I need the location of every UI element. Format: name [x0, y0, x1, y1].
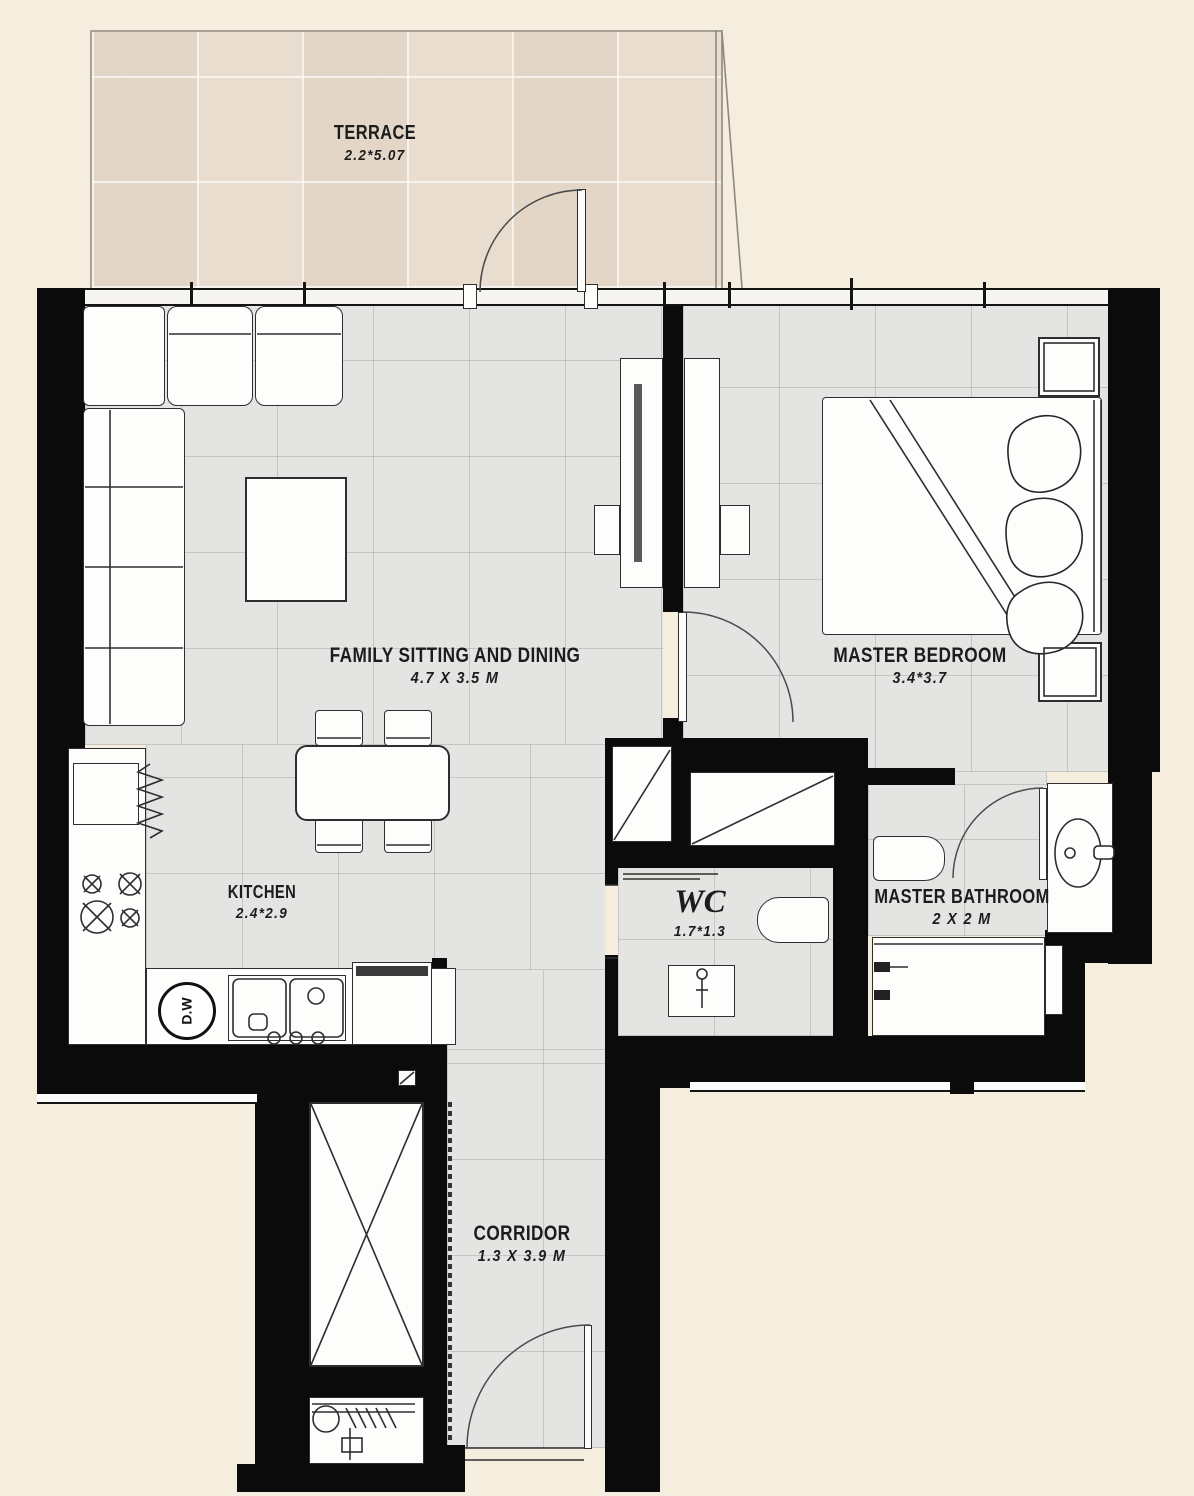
wc-closet	[690, 772, 835, 846]
wall-segment	[663, 306, 683, 612]
room-dims: 4.7 X 3.5 M	[317, 670, 592, 688]
dining-table	[295, 745, 450, 821]
sofa-seat	[167, 306, 253, 406]
room-name: MASTER BATHROOM	[874, 886, 1049, 909]
room-name: KITCHEN	[228, 882, 296, 903]
wall-segment	[605, 868, 618, 885]
window-mullion	[850, 278, 853, 310]
dishwasher: D.W	[158, 982, 216, 1040]
terrace-label: TERRACE 2.2*5.07	[325, 122, 425, 164]
wc-sink	[668, 965, 735, 1017]
wc-toilet	[757, 897, 829, 943]
shaft-valve-icon	[398, 1070, 416, 1086]
wall-notch	[950, 1082, 974, 1094]
dining-chair	[315, 710, 363, 746]
wall-segment	[424, 1445, 465, 1492]
wall-segment	[255, 1102, 309, 1492]
window-mullion	[303, 282, 306, 308]
tv-icon	[634, 384, 642, 562]
sofa-seat	[255, 306, 343, 406]
room-name: WC	[671, 884, 729, 921]
wc-closet	[612, 746, 672, 842]
console-side-box	[594, 505, 620, 555]
master-bathroom-label: MASTER BATHROOM 2 X 2 M	[855, 886, 1069, 929]
oven	[352, 962, 432, 1045]
wall-segment	[605, 955, 618, 1040]
wc-label: WC 1.7*1.3	[671, 884, 729, 940]
bedroom-door-leaf	[678, 612, 687, 722]
hall-floor	[447, 970, 605, 1050]
mechanical-room	[309, 1397, 424, 1464]
terrace-door-jamb	[463, 284, 477, 309]
wall-segment	[683, 745, 853, 772]
wall-segment	[845, 768, 955, 785]
dining-chair	[315, 818, 363, 853]
floor-plan: D.W	[0, 0, 1194, 1496]
service-shaft	[309, 1102, 424, 1367]
nightstand	[1038, 642, 1102, 702]
terrace-door-jamb	[584, 284, 598, 309]
dishwasher-label: D.W	[179, 997, 195, 1024]
wall-trim	[690, 1082, 1085, 1092]
terrace-door-leaf	[577, 189, 586, 292]
family-sitting-label: FAMILY SITTING AND DINING 4.7 X 3.5 M	[302, 644, 608, 688]
entrance-door-leaf	[584, 1325, 592, 1449]
bedroom-bench	[720, 505, 750, 555]
window-mullion	[728, 282, 731, 308]
room-dims: 1.7*1.3	[674, 923, 726, 940]
wall-segment	[605, 1085, 660, 1492]
room-dims: 2 X 2 M	[866, 911, 1058, 929]
room-dims: 1.3 X 3.9 M	[469, 1248, 576, 1266]
wall-segment	[37, 1040, 447, 1102]
shower-tub	[872, 937, 1045, 1036]
coffee-table	[245, 477, 347, 602]
room-name: TERRACE	[334, 122, 416, 145]
bed	[822, 397, 1102, 635]
dining-chair	[384, 818, 432, 853]
sofa-corner-section	[83, 306, 165, 406]
sofa-left-section	[83, 408, 185, 726]
wall-segment	[605, 1036, 860, 1088]
room-dims: 2.2*5.07	[330, 147, 420, 164]
master-bedroom-label: MASTER BEDROOM 3.4*3.7	[814, 644, 1025, 688]
wall-segment	[424, 1102, 447, 1448]
wall-segment	[309, 1367, 424, 1397]
kitchen-sink-unit	[228, 975, 346, 1041]
room-dims: 2.4*2.9	[224, 905, 299, 922]
bathroom-door-leaf	[1039, 788, 1047, 880]
wall-segment	[37, 748, 70, 1048]
wall-segment	[37, 288, 85, 750]
room-name: CORRIDOR	[473, 1222, 570, 1246]
shower-step	[1045, 945, 1063, 1015]
wall-trim	[37, 1094, 257, 1104]
window-mullion	[663, 282, 666, 308]
room-name: MASTER BEDROOM	[833, 644, 1006, 668]
bathroom-door-gap-floor	[950, 772, 1047, 785]
fridge	[73, 763, 139, 825]
window-band	[85, 288, 1160, 306]
bedroom-wardrobe	[684, 358, 720, 588]
window-mullion	[983, 282, 986, 308]
window-mullion	[190, 282, 193, 308]
room-dims: 3.4*3.7	[825, 670, 1015, 688]
wall-segment	[1108, 288, 1160, 772]
room-name: FAMILY SITTING AND DINING	[330, 644, 581, 668]
nightstand	[1038, 337, 1100, 397]
corridor-label: CORRIDOR 1.3 X 3.9 M	[463, 1222, 581, 1266]
dining-chair	[384, 710, 432, 746]
bathroom-toilet	[873, 836, 945, 881]
kitchen-label: KITCHEN 2.4*2.9	[220, 882, 304, 922]
wall-segment	[237, 1464, 447, 1492]
